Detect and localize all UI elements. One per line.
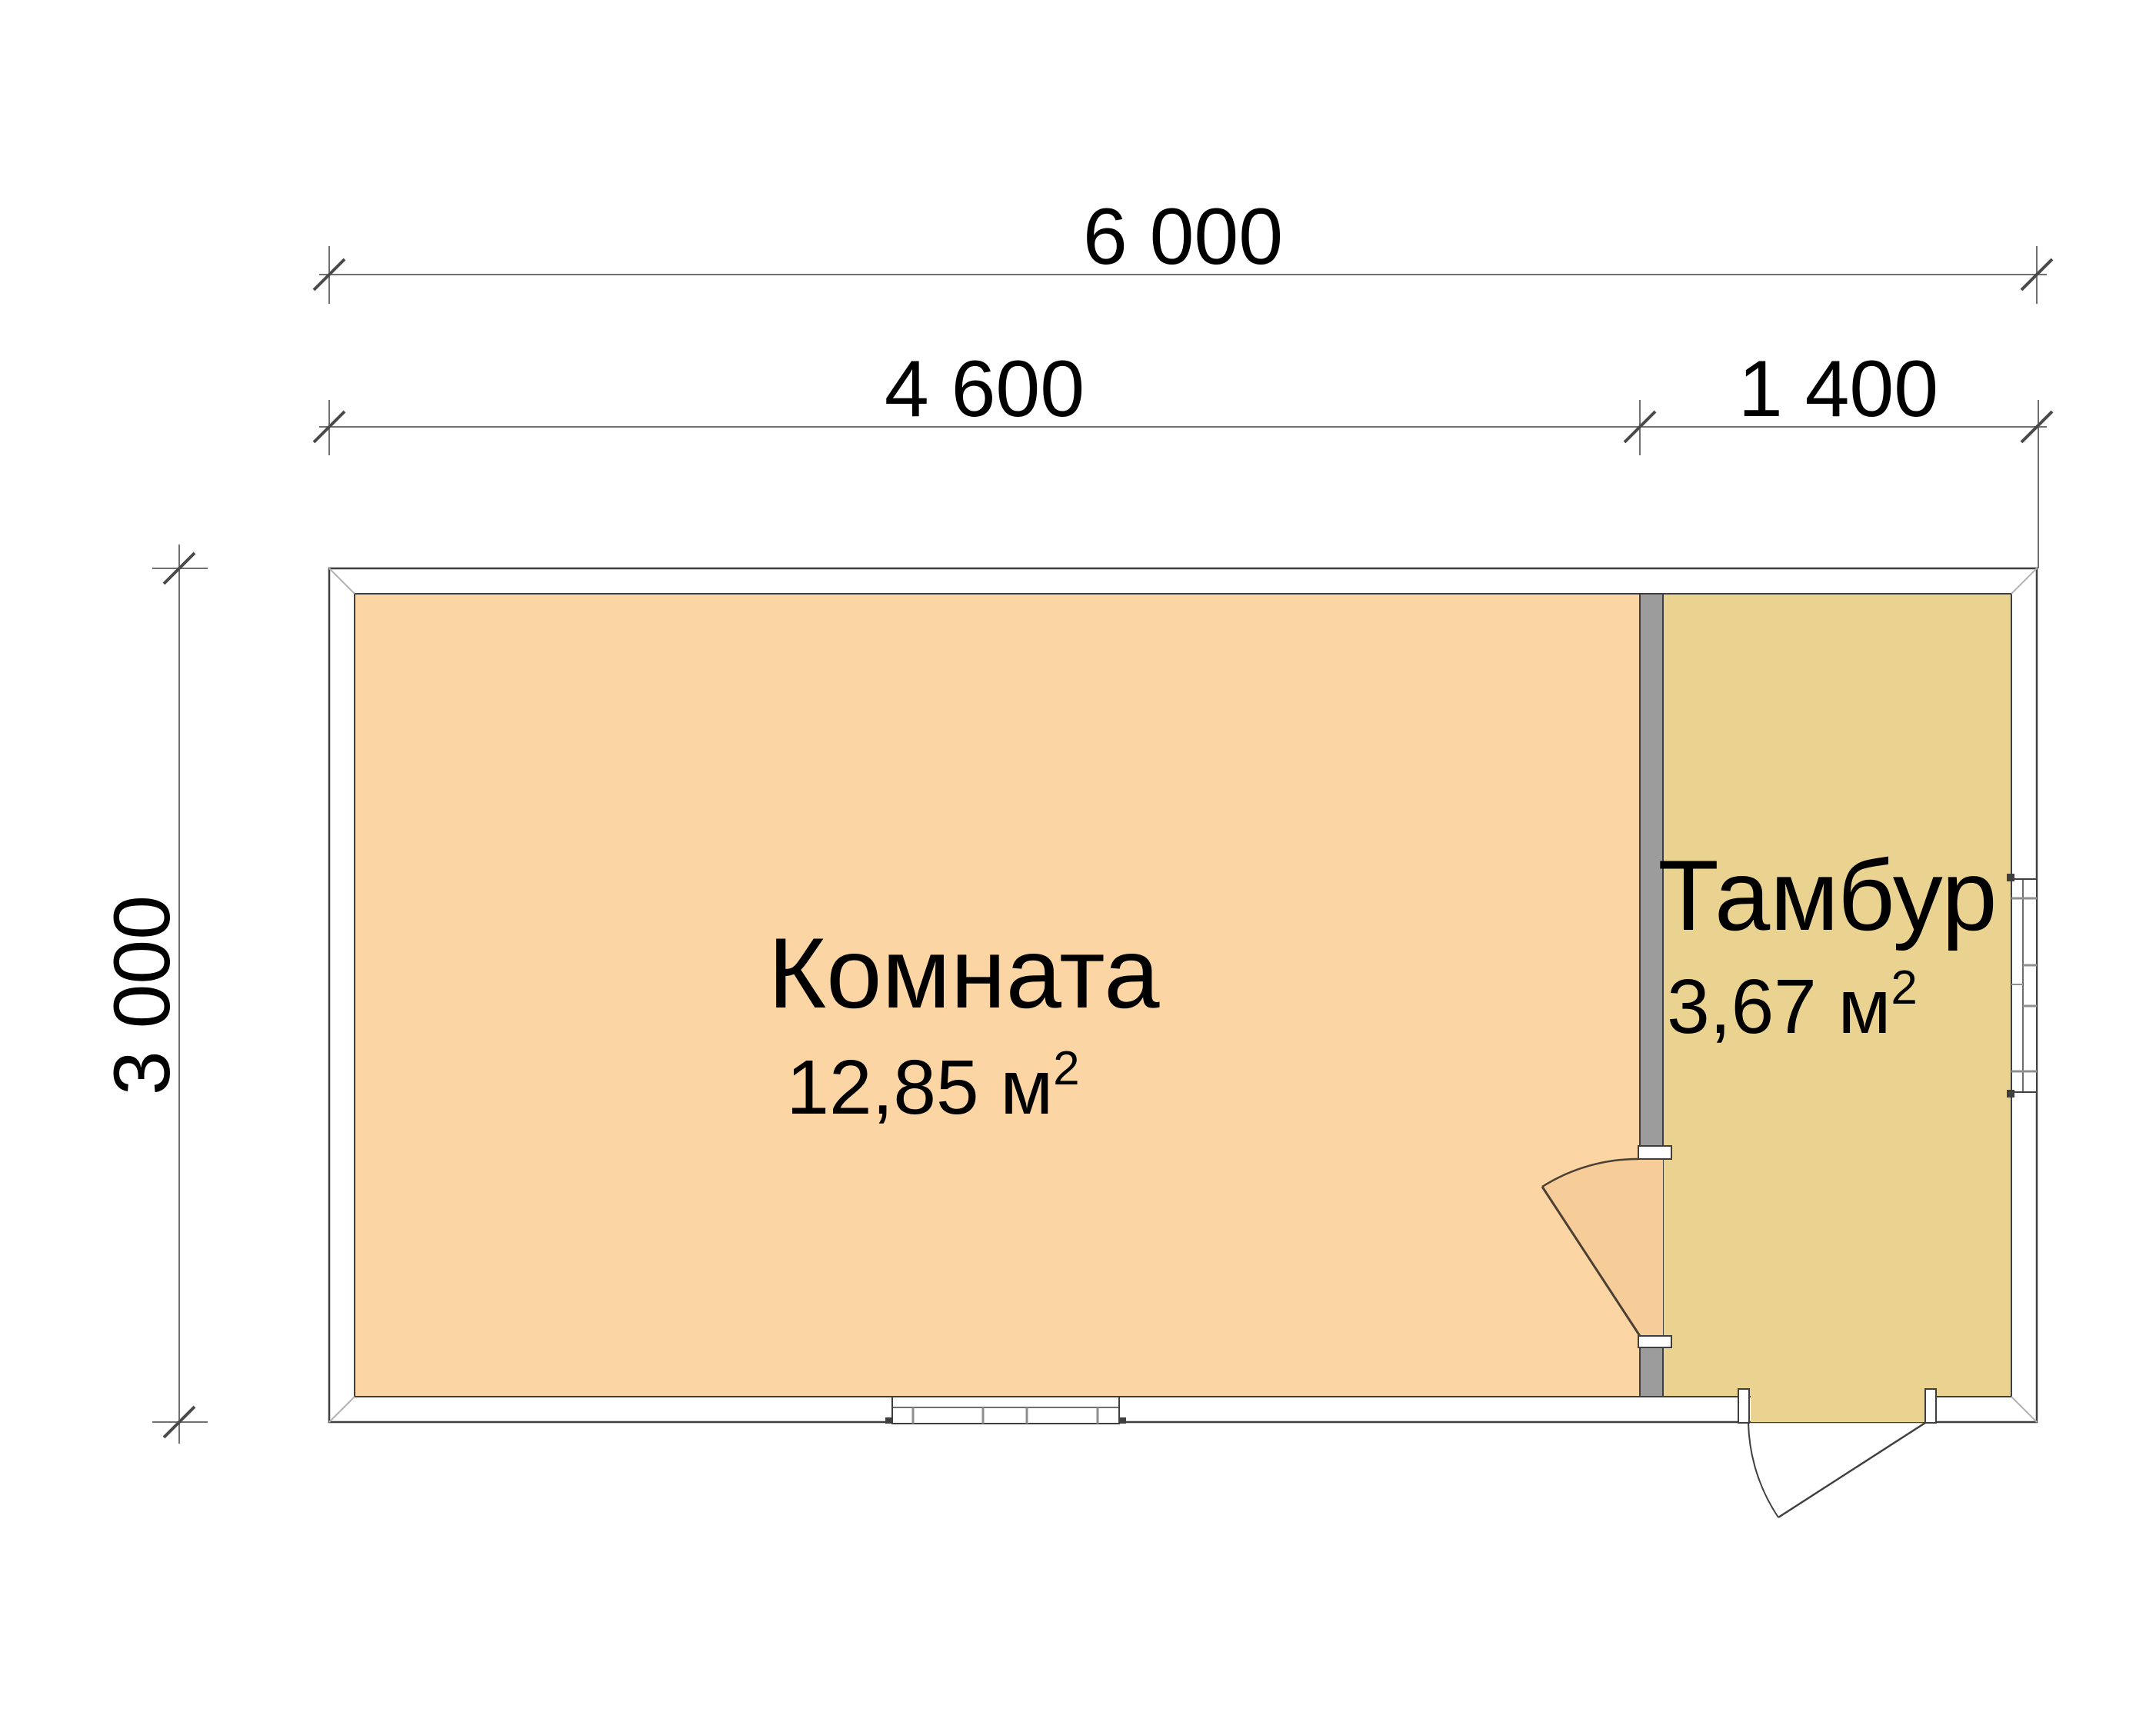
south-window-end-cap-left [885, 1417, 892, 1424]
east-window-end-cap-bottom [2007, 1090, 2014, 1097]
exterior-door-arc [1748, 1423, 1778, 1517]
interior-door-jamb-top [1638, 1146, 1671, 1159]
area-value-komnata: 12,85 м [786, 1044, 1053, 1131]
room-label-tambur: Тамбур [1658, 839, 1997, 951]
dimension-total-width: 6 000 [314, 192, 2052, 304]
floor-plan-drawing: 6 000 4 600 1 400 3 000 Комната 12,85 м2… [0, 0, 2156, 1712]
floor-plan-page: 6 000 4 600 1 400 3 000 Комната 12,85 м2… [0, 0, 2156, 1712]
east-window-frame [2011, 879, 2037, 1092]
south-window-end-cap-right [1119, 1417, 1126, 1424]
dimension-room-widths: 4 600 1 400 [314, 345, 2052, 568]
area-label-komnata: 12,85 м2 [786, 1042, 1079, 1131]
east-window [2007, 874, 2037, 1097]
exterior-door-jamb-left [1738, 1389, 1749, 1423]
dim-label-depth: 3 000 [98, 895, 187, 1095]
corner-miter-top-right [2011, 568, 2037, 594]
corner-miter-bottom-left [329, 1397, 355, 1422]
south-window [885, 1397, 1126, 1424]
south-window-frame [892, 1397, 1119, 1424]
corner-miter-bottom-right [2011, 1397, 2037, 1422]
corner-miter-top-left [329, 568, 355, 594]
dimension-depth: 3 000 [98, 545, 208, 1444]
exterior-door-opening [1751, 1395, 1925, 1422]
dim-label-room-width: 4 600 [885, 345, 1085, 434]
east-window-end-cap-top [2007, 874, 2014, 881]
area-label-tambur: 3,67 м2 [1667, 961, 1918, 1050]
exterior-door-leaf [1778, 1423, 1925, 1517]
dim-label-tambour-width: 1 400 [1738, 345, 1938, 434]
interior-door-opening [1640, 1159, 1663, 1336]
partition-wall-lower [1640, 1347, 1663, 1397]
dim-label-total-width: 6 000 [1083, 192, 1283, 281]
room-label-komnata: Комната [768, 917, 1160, 1029]
interior-door-jamb-bottom [1638, 1336, 1671, 1347]
area-sup-komnata: 2 [1053, 1042, 1079, 1095]
area-sup-tambur: 2 [1891, 961, 1917, 1014]
exterior-door-jamb-right [1925, 1389, 1936, 1423]
area-value-tambur: 3,67 м [1667, 964, 1891, 1050]
